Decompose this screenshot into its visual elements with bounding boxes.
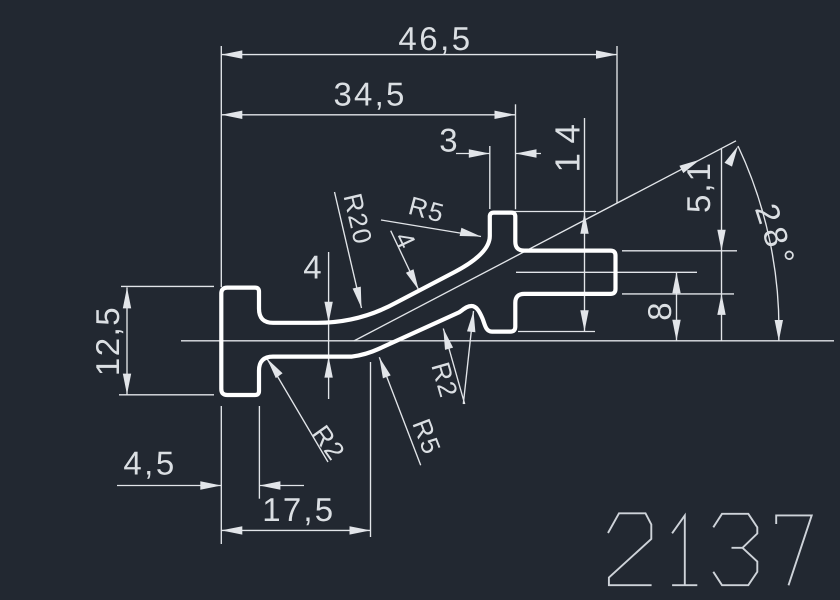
svg-text:12,5: 12,5: [89, 306, 126, 376]
svg-text:8: 8: [641, 301, 678, 321]
svg-text:17,5: 17,5: [262, 491, 335, 528]
svg-text:5,1: 5,1: [680, 161, 717, 213]
svg-text:14: 14: [548, 115, 587, 173]
svg-text:34,5: 34,5: [333, 76, 406, 113]
svg-text:4: 4: [303, 249, 323, 286]
svg-text:4,5: 4,5: [123, 445, 176, 482]
svg-text:46,5: 46,5: [398, 20, 472, 57]
svg-text:3: 3: [439, 122, 459, 159]
